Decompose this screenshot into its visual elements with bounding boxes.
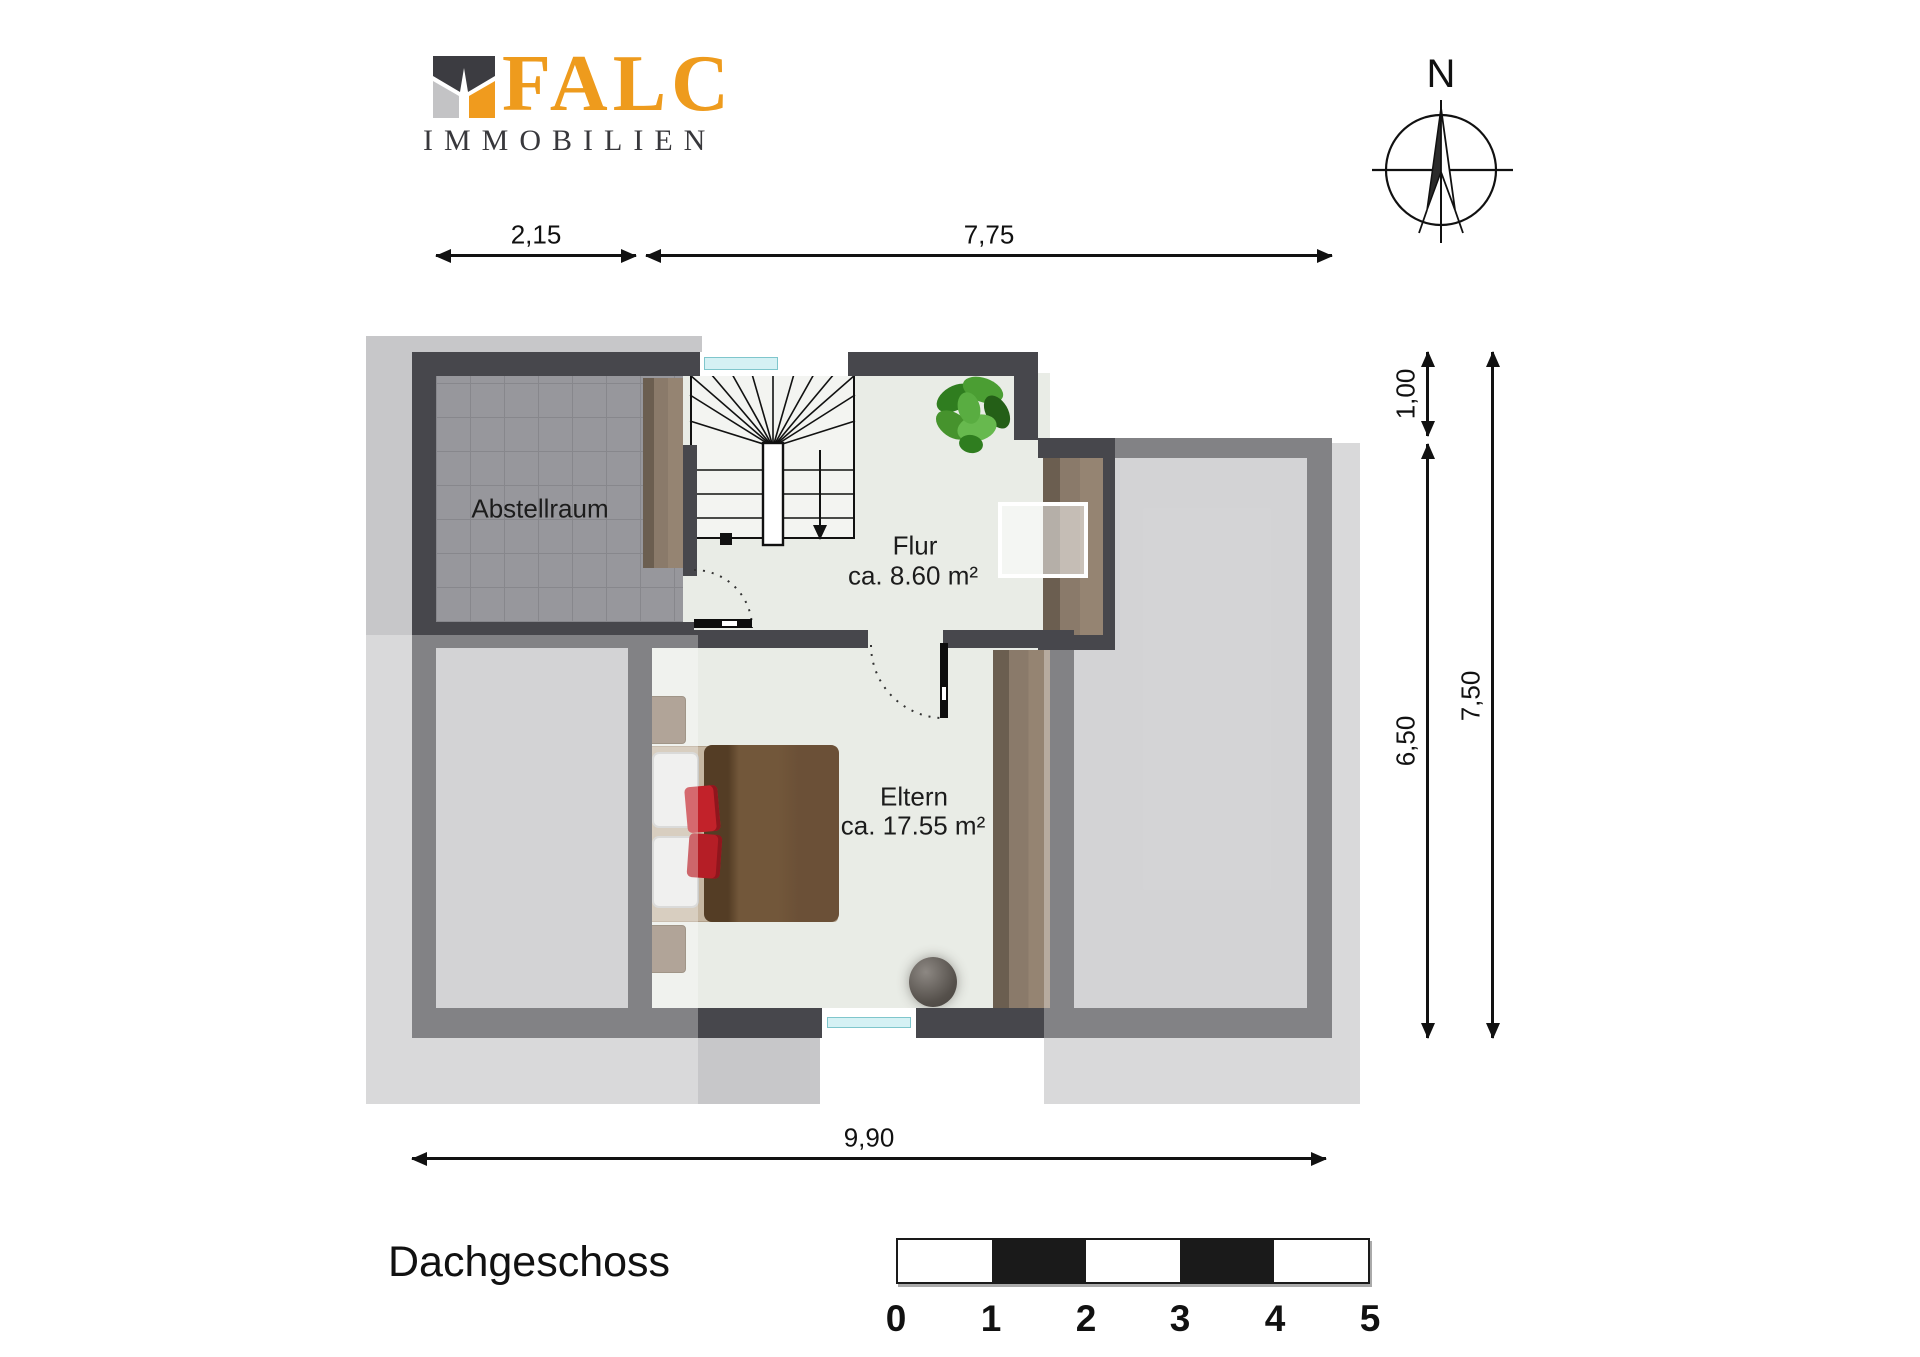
floorplan-page: FALC IMMOBILIEN N — [0, 0, 1920, 1357]
dim-line-top-1 — [436, 254, 636, 257]
abstellraum-wardrobe — [643, 378, 683, 568]
falc-logo-icon — [432, 55, 496, 119]
wall-pocket-east — [1103, 458, 1115, 650]
wall-flur-eltern-left — [694, 630, 868, 648]
wall-abstellraum-east — [683, 445, 697, 576]
scale-num-1: 1 — [981, 1298, 1002, 1340]
dim-right-1-value: 1,00 — [1391, 369, 1422, 420]
dim-bottom-value: 9,90 — [844, 1123, 895, 1154]
compass-rose-icon — [1360, 92, 1530, 252]
roof-overhang-left — [366, 336, 412, 1104]
falc-logo: FALC IMMOBILIEN — [0, 0, 760, 180]
floor-sphere-decor — [909, 957, 957, 1007]
red-pillow-top — [684, 785, 721, 834]
eltern-area-label: ca. 17.55 m² — [841, 811, 986, 842]
skylight-window-top-glass — [704, 357, 778, 370]
eltern-label: Eltern — [880, 782, 948, 813]
staircase — [690, 373, 855, 553]
dim-line-top-2 — [646, 254, 1332, 257]
scale-num-5: 5 — [1360, 1298, 1381, 1340]
eltern-wardrobe — [993, 650, 1050, 1008]
roof-overhang-right — [1332, 443, 1360, 1104]
dim-line-bottom — [412, 1157, 1326, 1160]
scale-seg-3 — [1086, 1240, 1180, 1282]
dim-right-2-value: 6,50 — [1391, 716, 1422, 767]
flur-area-label: ca. 8.60 m² — [848, 561, 978, 592]
scale-seg-4 — [1180, 1240, 1274, 1282]
nightstand-bottom — [646, 925, 686, 973]
red-pillow-bottom — [687, 833, 723, 879]
dim-line-right-1 — [1426, 352, 1429, 436]
roof-overhang-bottom-right — [1044, 1038, 1360, 1104]
roof-overhang-bottom-left — [366, 1038, 820, 1104]
eltern-door-handle — [942, 687, 946, 700]
brand-name: FALC — [502, 44, 734, 124]
wall-rightblock-top — [1038, 438, 1332, 458]
wall-eltern-west — [628, 648, 652, 1008]
wall-pocket-bottom — [1038, 635, 1115, 650]
left-atticroom-floor — [436, 648, 628, 1008]
plant-icon — [925, 370, 1017, 460]
flur-label: Flur — [893, 531, 938, 562]
dim-right-3-value: 7,50 — [1456, 671, 1487, 722]
dim-top-1-value: 2,15 — [511, 220, 562, 251]
abstellraum-door-handle — [722, 621, 737, 626]
dim-line-right-3 — [1491, 352, 1494, 1038]
scale-num-2: 2 — [1076, 1298, 1097, 1340]
scale-bar — [896, 1238, 1370, 1284]
flur-cabinet-outline — [998, 502, 1088, 578]
wall-abstellraum-bottom — [412, 622, 694, 648]
floor-title: Dachgeschoss — [388, 1238, 670, 1287]
wall-outer-left — [412, 352, 436, 1038]
scale-seg-2 — [992, 1240, 1086, 1282]
bed-blanket — [704, 745, 839, 922]
scale-seg-1 — [898, 1240, 992, 1282]
nightstand-top — [646, 696, 686, 744]
abstellraum-label: Abstellraum — [471, 494, 608, 525]
roof-overhang-top-left — [366, 336, 702, 352]
eltern-door-leaf — [940, 643, 948, 718]
wall-flur-east-upper — [1014, 352, 1038, 440]
scale-num-0: 0 — [886, 1298, 907, 1340]
scale-num-3: 3 — [1170, 1298, 1191, 1340]
scale-seg-5 — [1274, 1240, 1368, 1282]
wall-outer-right — [1307, 438, 1332, 1038]
dim-line-right-2 — [1426, 444, 1429, 1038]
window-bottom-glass — [827, 1017, 911, 1028]
dim-top-2-value: 7,75 — [964, 220, 1015, 251]
compass-north-label: N — [1427, 52, 1456, 97]
scale-num-4: 4 — [1265, 1298, 1286, 1340]
brand-subtitle: IMMOBILIEN — [423, 124, 716, 158]
wall-eltern-east — [1050, 650, 1074, 1008]
